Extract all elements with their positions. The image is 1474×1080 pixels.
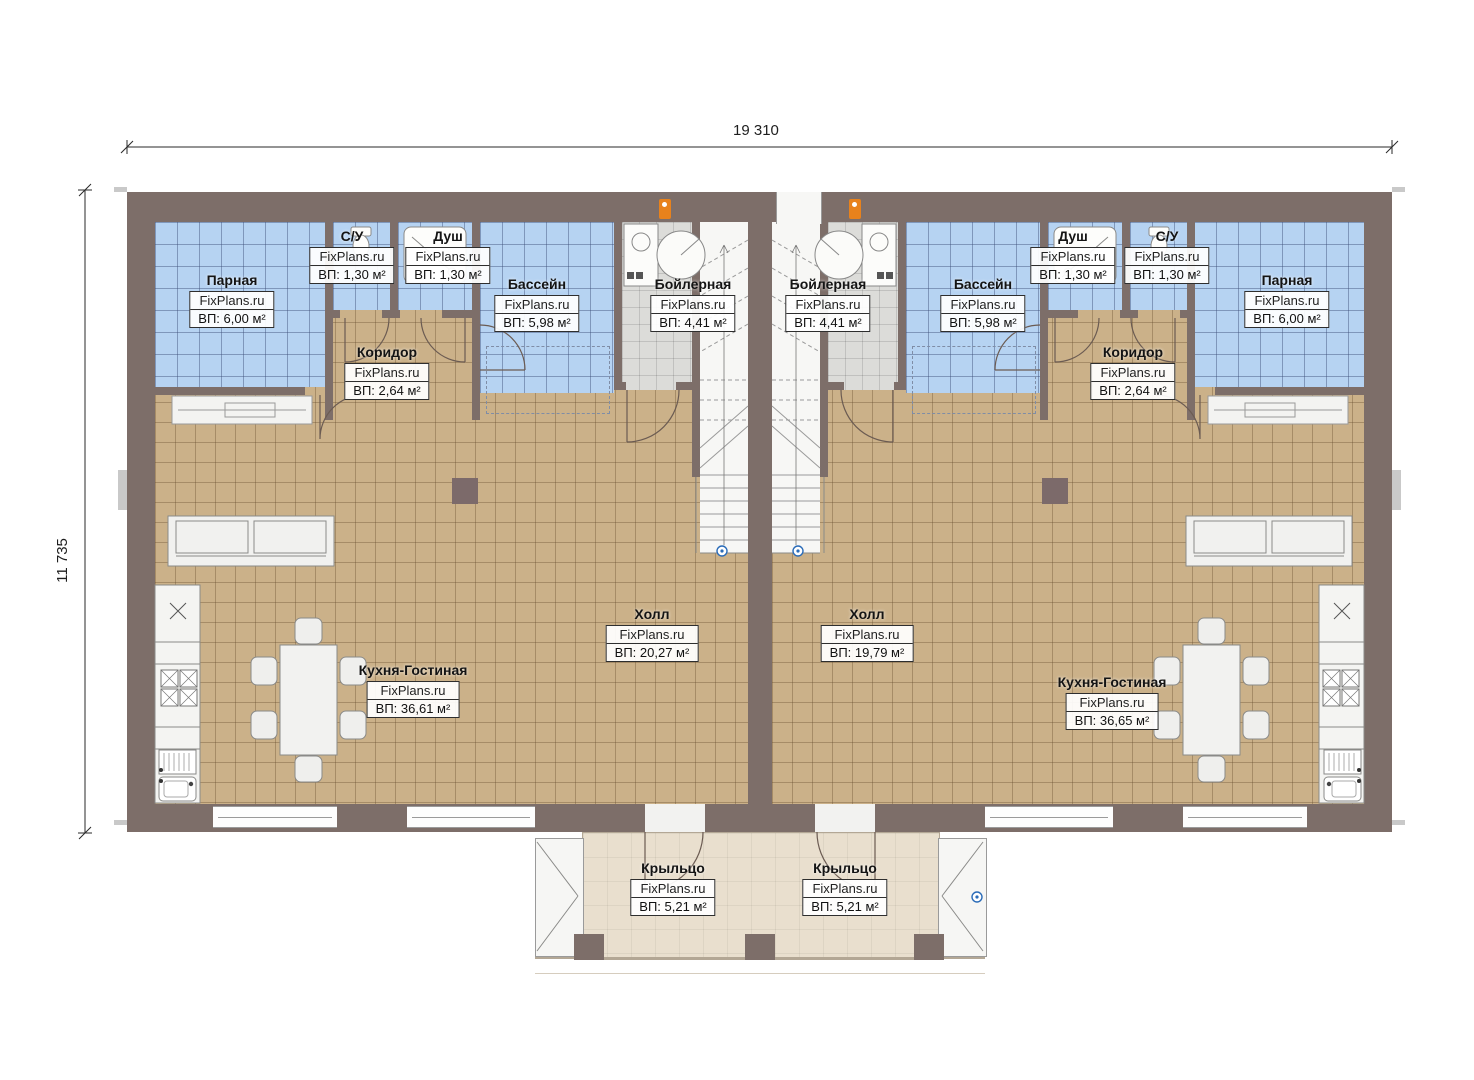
wall-segment xyxy=(333,310,340,318)
top-wall-gap xyxy=(776,192,822,224)
watermark-text: FixPlans.ru xyxy=(368,682,459,700)
porch-pier xyxy=(914,934,944,960)
pool-edge-right xyxy=(912,346,1036,414)
room-area: ВП: 36,61 м² xyxy=(368,700,459,717)
window xyxy=(213,806,337,828)
room-label-dush-left: Душ FixPlans.ru ВП: 1,30 м² xyxy=(405,228,490,284)
watermark-text: FixPlans.ru xyxy=(345,364,428,382)
watermark-text: FixPlans.ru xyxy=(631,880,714,898)
room-label-porch-left: Крыльцо FixPlans.ru ВП: 5,21 м² xyxy=(630,860,715,916)
porch-pier xyxy=(574,934,604,960)
room-label-holl-right: Холл FixPlans.ru ВП: 19,79 м² xyxy=(821,606,914,662)
entry-door-opening-left xyxy=(645,804,705,832)
room-info-box: FixPlans.ru ВП: 36,61 м² xyxy=(367,681,460,718)
room-info-box: FixPlans.ru ВП: 36,65 м² xyxy=(1066,693,1159,730)
watermark-text: FixPlans.ru xyxy=(495,296,578,314)
room-title: Холл xyxy=(606,606,699,622)
room-title: Душ xyxy=(405,228,490,244)
room-info-box: FixPlans.ru ВП: 5,98 м² xyxy=(494,295,579,332)
room-info-box: FixPlans.ru ВП: 4,41 м² xyxy=(650,295,735,332)
boiler-flue-marker-right xyxy=(849,199,861,219)
room-label-parnaya-left: Парная FixPlans.ru ВП: 6,00 м² xyxy=(189,272,274,328)
room-title: Кухня-Гостиная xyxy=(1058,674,1167,690)
room-area: ВП: 6,00 м² xyxy=(1245,310,1328,327)
room-title: Крыльцо xyxy=(802,860,887,876)
room-area: ВП: 5,98 м² xyxy=(941,314,1024,331)
stair-shaft-left xyxy=(700,222,748,553)
room-info-box: FixPlans.ru ВП: 5,21 м² xyxy=(630,879,715,916)
wall-segment xyxy=(1048,310,1078,318)
section-tick xyxy=(114,820,127,825)
wall-segment xyxy=(894,382,906,390)
watermark-text: FixPlans.ru xyxy=(190,292,273,310)
room-title: Бассейн xyxy=(494,276,579,292)
wall-segment xyxy=(1120,310,1138,318)
room-label-kitchen-right: Кухня-Гостиная FixPlans.ru ВП: 36,65 м² xyxy=(1058,674,1167,730)
window xyxy=(985,806,1113,828)
watermark-text: FixPlans.ru xyxy=(941,296,1024,314)
section-tick xyxy=(1392,187,1405,192)
watermark-text: FixPlans.ru xyxy=(803,880,886,898)
room-info-box: FixPlans.ru ВП: 19,79 м² xyxy=(821,625,914,662)
watermark-text: FixPlans.ru xyxy=(310,248,393,266)
room-info-box: FixPlans.ru ВП: 5,98 м² xyxy=(940,295,1025,332)
watermark-text: FixPlans.ru xyxy=(822,626,913,644)
wall-segment xyxy=(614,222,622,390)
room-area: ВП: 4,41 м² xyxy=(651,314,734,331)
room-title: Бойлерная xyxy=(650,276,735,292)
room-label-parnaya-right: Парная FixPlans.ru ВП: 6,00 м² xyxy=(1244,272,1329,328)
room-area: ВП: 5,21 м² xyxy=(803,898,886,915)
room-label-su-left: С/У FixPlans.ru ВП: 1,30 м² xyxy=(309,228,394,284)
wall-segment xyxy=(820,222,828,477)
room-title: Душ xyxy=(1030,228,1115,244)
section-tick xyxy=(118,470,127,510)
entry-door-opening-right xyxy=(815,804,875,832)
room-info-box: FixPlans.ru ВП: 2,64 м² xyxy=(1090,363,1175,400)
room-area: ВП: 5,98 м² xyxy=(495,314,578,331)
wall-segment xyxy=(820,382,844,390)
room-label-porch-right: Крыльцо FixPlans.ru ВП: 5,21 м² xyxy=(802,860,887,916)
watermark-text: FixPlans.ru xyxy=(1125,248,1208,266)
room-area: ВП: 36,65 м² xyxy=(1067,712,1158,729)
room-title: С/У xyxy=(309,228,394,244)
room-info-box: FixPlans.ru ВП: 6,00 м² xyxy=(189,291,274,328)
room-title: Крыльцо xyxy=(630,860,715,876)
room-area: ВП: 5,21 м² xyxy=(631,898,714,915)
room-info-box: FixPlans.ru ВП: 1,30 м² xyxy=(1030,247,1115,284)
watermark-text: FixPlans.ru xyxy=(406,248,489,266)
room-label-koridor-left: Коридор FixPlans.ru ВП: 2,64 м² xyxy=(344,344,429,400)
room-info-box: FixPlans.ru ВП: 20,27 м² xyxy=(606,625,699,662)
room-label-kitchen-left: Кухня-Гостиная FixPlans.ru ВП: 36,61 м² xyxy=(359,662,468,718)
section-tick xyxy=(114,187,127,192)
porch-edge-line xyxy=(535,973,985,974)
watermark-text: FixPlans.ru xyxy=(1067,694,1158,712)
room-label-boilernaya-left: Бойлерная FixPlans.ru ВП: 4,41 м² xyxy=(650,276,735,332)
wall-segment xyxy=(1215,387,1365,395)
floor-plan-canvas: 19 310 11 735 xyxy=(0,0,1474,1080)
room-area: ВП: 1,30 м² xyxy=(310,266,393,283)
room-info-box: FixPlans.ru ВП: 1,30 м² xyxy=(405,247,490,284)
window xyxy=(407,806,535,828)
window xyxy=(1183,806,1307,828)
boiler-flue-marker-left xyxy=(659,199,671,219)
pool-edge-left xyxy=(486,346,610,414)
room-area: ВП: 1,30 м² xyxy=(1031,266,1114,283)
room-area: ВП: 2,64 м² xyxy=(345,382,428,399)
room-info-box: FixPlans.ru ВП: 2,64 м² xyxy=(344,363,429,400)
stair-shaft-right xyxy=(772,222,820,553)
room-title: Бассейн xyxy=(940,276,1025,292)
room-title: Кухня-Гостиная xyxy=(359,662,468,678)
room-title: Холл xyxy=(821,606,914,622)
room-info-box: FixPlans.ru ВП: 1,30 м² xyxy=(309,247,394,284)
porch-steps-right xyxy=(938,838,987,957)
watermark-text: FixPlans.ru xyxy=(607,626,698,644)
wall-segment xyxy=(155,387,305,395)
room-info-box: FixPlans.ru ВП: 6,00 м² xyxy=(1244,291,1329,328)
room-title: Коридор xyxy=(344,344,429,360)
watermark-text: FixPlans.ru xyxy=(786,296,869,314)
room-area: ВП: 19,79 м² xyxy=(822,644,913,661)
wall-segment xyxy=(676,382,700,390)
wall-segment xyxy=(382,310,400,318)
watermark-text: FixPlans.ru xyxy=(1245,292,1328,310)
dimension-width-label: 19 310 xyxy=(733,122,779,139)
room-area: ВП: 1,30 м² xyxy=(406,266,489,283)
room-label-bassein-right: Бассейн FixPlans.ru ВП: 5,98 м² xyxy=(940,276,1025,332)
wall-segment xyxy=(1180,310,1187,318)
section-tick xyxy=(1392,470,1401,510)
wall-segment xyxy=(442,310,472,318)
room-label-dush-right: Душ FixPlans.ru ВП: 1,30 м² xyxy=(1030,228,1115,284)
room-info-box: FixPlans.ru ВП: 1,30 м² xyxy=(1124,247,1209,284)
wall-segment xyxy=(692,222,700,477)
room-label-holl-left: Холл FixPlans.ru ВП: 20,27 м² xyxy=(606,606,699,662)
porch-pier xyxy=(745,934,775,960)
room-title: Парная xyxy=(1244,272,1329,288)
room-info-box: FixPlans.ru ВП: 4,41 м² xyxy=(785,295,870,332)
room-area: ВП: 6,00 м² xyxy=(190,310,273,327)
room-label-boilernaya-right: Бойлерная FixPlans.ru ВП: 4,41 м² xyxy=(785,276,870,332)
room-title: Коридор xyxy=(1090,344,1175,360)
watermark-text: FixPlans.ru xyxy=(1091,364,1174,382)
room-title: Бойлерная xyxy=(785,276,870,292)
watermark-text: FixPlans.ru xyxy=(651,296,734,314)
section-tick xyxy=(1392,820,1405,825)
room-label-su-right: С/У FixPlans.ru ВП: 1,30 м² xyxy=(1124,228,1209,284)
room-title: Парная xyxy=(189,272,274,288)
room-info-box: FixPlans.ru ВП: 5,21 м² xyxy=(802,879,887,916)
room-area: ВП: 4,41 м² xyxy=(786,314,869,331)
watermark-text: FixPlans.ru xyxy=(1031,248,1114,266)
wall-segment xyxy=(614,382,626,390)
dimension-height-label: 11 735 xyxy=(54,538,71,583)
room-label-koridor-right: Коридор FixPlans.ru ВП: 2,64 м² xyxy=(1090,344,1175,400)
wall-central xyxy=(748,222,772,804)
room-area: ВП: 2,64 м² xyxy=(1091,382,1174,399)
room-label-bassein-left: Бассейн FixPlans.ru ВП: 5,98 м² xyxy=(494,276,579,332)
room-area: ВП: 1,30 м² xyxy=(1125,266,1208,283)
room-area: ВП: 20,27 м² xyxy=(607,644,698,661)
room-title: С/У xyxy=(1124,228,1209,244)
wall-segment xyxy=(898,222,906,390)
